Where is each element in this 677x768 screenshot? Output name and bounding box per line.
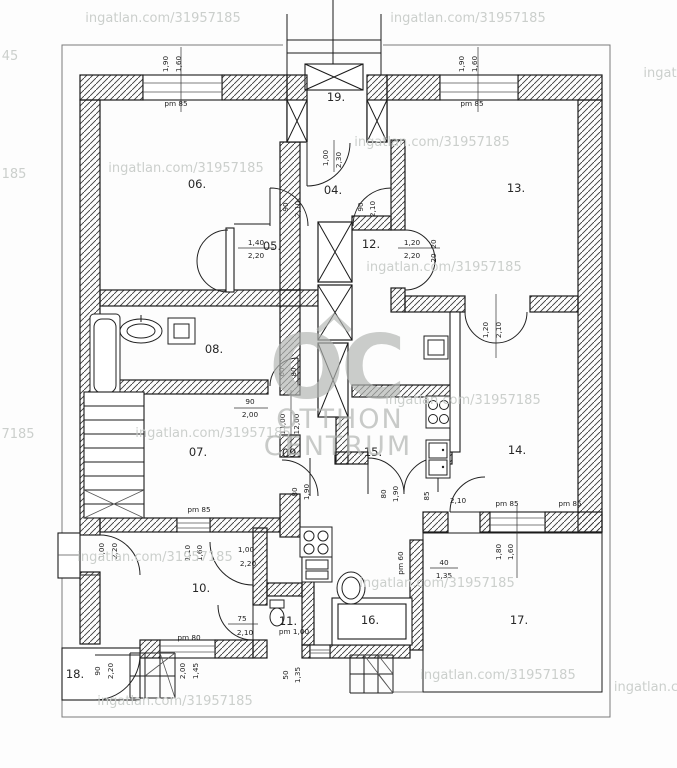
dim-door15l-h: 1,90 [391, 486, 400, 503]
dim-win-tr-w: 1,90 [457, 56, 466, 73]
room-label-06: 06. [188, 177, 206, 191]
dim-win-tl-w: 1,90 [161, 56, 170, 73]
closet-stub-wall [226, 228, 234, 292]
dim-door1417-h: 2,10 [450, 496, 467, 505]
room-label-13: 13. [507, 181, 525, 195]
watermark-fragment: 45 [2, 49, 19, 64]
room-label-19: 19. [327, 90, 345, 104]
dim-door0910-h: 1,90 [302, 484, 311, 501]
window-porch-11 [310, 645, 330, 658]
watermark-fragment: ingat [643, 66, 676, 81]
dim-win10-pm: pm 85 [187, 505, 210, 514]
room-label-12: 12. [362, 237, 380, 251]
room-label-04: 04. [324, 183, 342, 197]
dim-door15l-w: 80 [379, 489, 388, 499]
dim-door19-w: 1,00 [321, 150, 330, 167]
dim-win14-h: 1,60 [506, 544, 515, 561]
dim-door1314-h: 2,10 [494, 322, 503, 339]
dim-door04l-w: 90 [281, 202, 290, 212]
room-label-14: 14. [508, 443, 526, 457]
dim-door1417-w: 85 [422, 491, 431, 500]
dim-door04r-h: 2,10 [368, 201, 377, 218]
staircase-07 [84, 392, 144, 518]
dim-win10b-pm: pm 80 [177, 633, 201, 642]
watermark-url: ingatlan.com/31957185 [385, 393, 540, 408]
watermark-url: ingatlan.com/31957185 [97, 694, 252, 709]
dim-win16-w: 40 [439, 558, 449, 567]
window-room14-south [490, 505, 545, 578]
room-label-18: 18. [66, 667, 84, 681]
dim-win14-pm: pm 85 [495, 499, 518, 508]
basin-12 [424, 336, 448, 359]
dim-door1011-h: 2,10 [237, 628, 254, 637]
washing-machine [168, 318, 195, 344]
watermark-url: ingatlan.com/31957185 [390, 11, 545, 26]
dim-door18-w: 90 [93, 666, 102, 676]
dim-win-tl-pm: pm 85 [164, 99, 187, 108]
dim-door19-h: 2,30 [334, 152, 343, 169]
dim-door1011-w: 75 [237, 614, 246, 623]
dim-door18-h: 2,20 [106, 663, 115, 680]
dim-open0709-h: 2,00 [242, 410, 259, 419]
watermark-url: ingatlan.com/31957185 [359, 576, 514, 591]
dim-door1314-w: 1,20 [481, 322, 490, 339]
dim-door0910-w: 80 [290, 487, 299, 497]
room-label-08: 08. [205, 342, 223, 356]
dim-win14b-pm: pm 85 [558, 499, 581, 508]
watermark-url: ingatlan.com/31957185 [420, 668, 575, 683]
dim-win-tr-h: 1,60 [470, 56, 479, 73]
dim-11b-b: 1,35 [293, 667, 302, 683]
watermark-url: ingatlan.com/31957185 [85, 11, 240, 26]
watermark-url: ingatlan.com/31957185 [354, 135, 509, 150]
dim-win-tl-h: 1,60 [174, 56, 183, 73]
dim-11b-a: 50 [281, 670, 290, 680]
window-room10-top [177, 518, 210, 532]
wall-15-14 [450, 312, 460, 452]
room-label-10: 10. [192, 581, 210, 595]
stove-kitchen-10 [300, 527, 332, 582]
dim-door04l-h: 2,10 [293, 201, 302, 218]
watermark-url: ingatlan.com/31957185 [366, 260, 521, 275]
bathroom-sink [120, 315, 162, 343]
dim-18b-a: 2,00 [178, 663, 187, 680]
dim-open0709-w: 90 [245, 397, 255, 406]
window-room10-bottom [160, 640, 215, 658]
sink-kitchen-15 [426, 440, 450, 478]
dim-door12-w: 1,20 [404, 238, 421, 247]
watermark-fragment: 185 [2, 167, 27, 182]
dim-win11-pm: pm 1,00 [279, 627, 310, 636]
logo-line2: CENTRUM [264, 431, 412, 462]
door-09-to-10 [282, 458, 318, 496]
dim-door04r-w: 90 [356, 202, 365, 212]
bathtub [90, 314, 120, 398]
door-14-to-17 [450, 477, 485, 512]
steps-bottom-center [350, 655, 423, 693]
dim-door12-h: 2,20 [404, 251, 421, 260]
room-label-16: 16. [361, 613, 379, 627]
watermark-fragment: ingatlan.co [614, 680, 677, 695]
dim-door10r-w: 1,00 [238, 545, 255, 554]
dim-vent-a: 20 [429, 239, 438, 249]
dim-door10r-h: 2,20 [240, 559, 257, 568]
floor-plan-drawing: 1,90 1,60 pm 85 1,90 1,60 pm 85 1,00 2,3… [0, 0, 677, 768]
dim-win14-w: 1,80 [494, 544, 503, 561]
watermark-url: ingatlan.com/31957185 [77, 550, 232, 565]
dim-18b-b: 1,45 [191, 663, 200, 679]
room-label-05: 05. [263, 239, 281, 253]
watermark-fragment: 7185 [1, 427, 34, 442]
floor-plan-image: 1,90 1,60 pm 85 1,90 1,60 pm 85 1,00 2,3… [0, 0, 677, 768]
room-label-07: 07. [189, 445, 207, 459]
otthon-centrum-logo: OC OTTHON CENTRUM [264, 316, 412, 462]
room-label-11: 11. [279, 614, 297, 628]
watermark-url: ingatlan.com/31957185 [108, 161, 263, 176]
dim-win-tr-pm: pm 85 [460, 99, 483, 108]
dim-win16-pm: pm 60 [396, 551, 405, 575]
room-label-17: 17. [510, 613, 528, 627]
